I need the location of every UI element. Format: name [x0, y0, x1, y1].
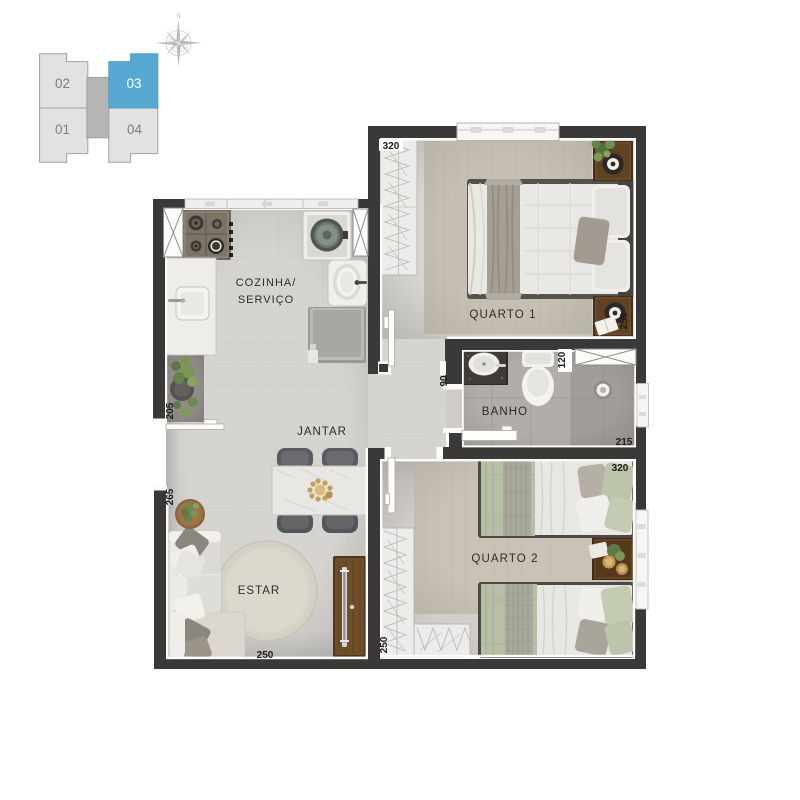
svg-text:BANHO: BANHO	[482, 406, 528, 418]
svg-text:JANTAR: JANTAR	[297, 426, 347, 438]
svg-text:250: 250	[257, 650, 274, 661]
svg-text:320: 320	[383, 141, 400, 152]
svg-text:SERVIÇO: SERVIÇO	[238, 294, 294, 306]
svg-text:02: 02	[55, 76, 70, 91]
svg-text:ESTAR: ESTAR	[238, 585, 281, 597]
svg-text:205: 205	[165, 402, 176, 419]
svg-text:QUARTO 1: QUARTO 1	[469, 309, 536, 321]
svg-text:03: 03	[126, 76, 141, 91]
svg-text:01: 01	[55, 122, 70, 137]
svg-text:N: N	[176, 14, 180, 20]
svg-text:250: 250	[619, 312, 630, 329]
svg-text:320: 320	[612, 463, 629, 474]
svg-text:215: 215	[616, 437, 633, 448]
svg-text:90: 90	[439, 375, 450, 387]
svg-text:QUARTO 2: QUARTO 2	[471, 553, 538, 565]
svg-text:04: 04	[127, 122, 143, 137]
svg-text:COZINHA/: COZINHA/	[236, 277, 297, 289]
svg-text:265: 265	[165, 488, 176, 505]
svg-text:120: 120	[557, 351, 568, 368]
svg-text:250: 250	[379, 636, 390, 653]
